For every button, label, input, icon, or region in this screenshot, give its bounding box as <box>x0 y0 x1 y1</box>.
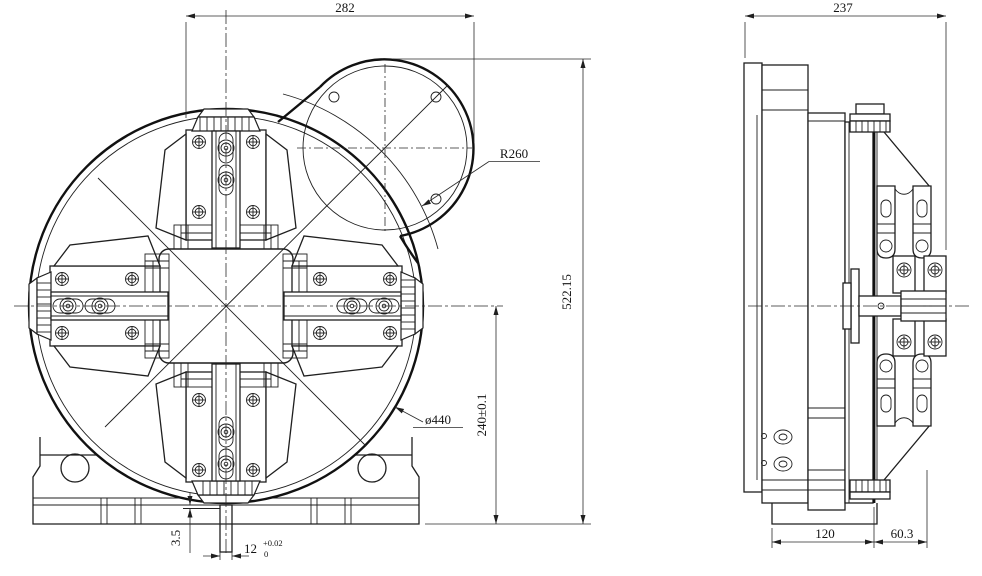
side-plate-c <box>808 113 845 510</box>
side-clamp-upper <box>877 186 946 293</box>
dim-r260-label: R260 <box>500 146 528 161</box>
dim-3-5-label: 3.5 <box>168 530 183 546</box>
base-mount-hole-left <box>61 454 89 482</box>
dim-282-label: 282 <box>335 0 355 15</box>
dim-240-label: 240±0.1 <box>474 394 489 437</box>
side-plate-a <box>744 63 762 492</box>
dim-440-label: ø440 <box>425 412 451 427</box>
dim-120-label: 120 <box>815 526 835 541</box>
side-view: 237 120 60.3 <box>744 0 970 548</box>
dim-522-label: 522.15 <box>559 274 574 310</box>
front-view: 282 R260 522.15 ø440 240±0.1 <box>14 0 591 560</box>
dim-12-tol-lower: 0 <box>264 549 268 559</box>
base-mount-hole-right <box>358 454 386 482</box>
side-clamp-lower <box>877 319 946 426</box>
dim-12-tol-upper: +0.02 <box>263 538 283 548</box>
dim-12-label: 12 <box>244 541 257 556</box>
engineering-drawing: 282 R260 522.15 ø440 240±0.1 <box>0 0 982 576</box>
side-top-serration <box>850 104 890 132</box>
side-plate-b <box>762 65 808 503</box>
side-bottom-serration <box>850 480 890 499</box>
dim-60-3-label: 60.3 <box>891 526 914 541</box>
dim-237-label: 237 <box>833 0 853 15</box>
